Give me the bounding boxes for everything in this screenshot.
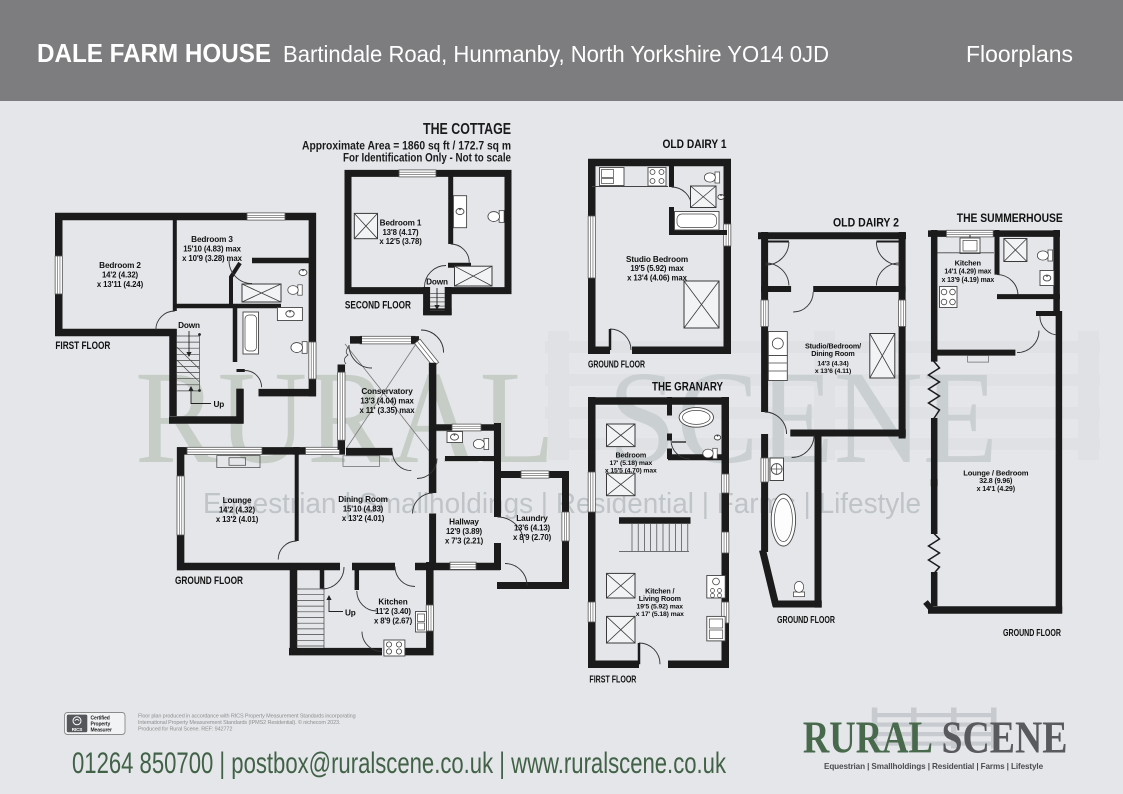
svg-text:For Identification Only - Not: For Identification Only - Not to scale	[343, 151, 511, 165]
svg-text:14'2 (4.32): 14'2 (4.32)	[102, 271, 139, 280]
svg-text:Laundry: Laundry	[516, 514, 548, 523]
svg-text:x 12'5 (3.78): x 12'5 (3.78)	[379, 237, 422, 246]
svg-text:x 17' (5.18) max: x 17' (5.18) max	[636, 611, 684, 618]
svg-text:Dining Room: Dining Room	[338, 495, 388, 504]
svg-text:x 13'2 (4.01): x 13'2 (4.01)	[216, 515, 259, 524]
svg-text:OLD DAIRY 1: OLD DAIRY 1	[663, 137, 727, 151]
svg-text:Up: Up	[345, 609, 356, 618]
svg-text:15'10 (4.83) max: 15'10 (4.83) max	[183, 245, 241, 254]
svg-text:x 13'9 (4.19) max: x 13'9 (4.19) max	[942, 277, 995, 284]
svg-text:Dining Room: Dining Room	[811, 349, 854, 358]
svg-text:Hallway: Hallway	[449, 518, 479, 527]
svg-text:FIRST FLOOR: FIRST FLOOR	[55, 340, 110, 352]
svg-text:13'3 (4.04) max: 13'3 (4.04) max	[360, 397, 414, 406]
svg-text:Down: Down	[178, 321, 200, 330]
svg-text:x 8'9 (2.70): x 8'9 (2.70)	[513, 533, 552, 542]
svg-text:Measurer: Measurer	[91, 728, 112, 734]
svg-text:Lounge / Bedroom: Lounge / Bedroom	[963, 469, 1029, 478]
svg-text:x 15'5 (4.70) max: x 15'5 (4.70) max	[605, 468, 657, 475]
svg-text:Floor plan produced in accorda: Floor plan produced in accordance with R…	[138, 714, 356, 720]
svg-text:FIRST FLOOR: FIRST FLOOR	[589, 674, 636, 685]
svg-text:x 7'3 (2.21): x 7'3 (2.21)	[445, 537, 484, 546]
svg-text:THE GRANARY: THE GRANARY	[652, 380, 723, 394]
svg-text:SECOND FLOOR: SECOND FLOOR	[345, 300, 411, 312]
svg-text:Kitchen: Kitchen	[378, 598, 407, 607]
svg-text:Living Room: Living Room	[639, 594, 681, 603]
svg-text:Floorplans: Floorplans	[966, 41, 1073, 67]
svg-text:Conservatory: Conservatory	[361, 387, 413, 396]
svg-text:19'5 (5.92) max: 19'5 (5.92) max	[630, 264, 684, 273]
svg-text:13'6 (4.13): 13'6 (4.13)	[514, 524, 551, 533]
svg-text:17' (5.18) max: 17' (5.18) max	[609, 460, 652, 467]
svg-text:Up: Up	[214, 400, 225, 409]
svg-text:11'2 (3.40): 11'2 (3.40)	[375, 607, 411, 616]
svg-text:GROUND FLOOR: GROUND FLOOR	[588, 360, 645, 371]
svg-text:International Property Measure: International Property Measurement Stand…	[138, 719, 341, 726]
svg-text:Produced for Rural Scene. RE: Produced for Rural Scene. REF: 942772	[138, 727, 232, 733]
svg-text:12'9 (3.89): 12'9 (3.89)	[446, 527, 483, 536]
svg-text:Studio Bedroom: Studio Bedroom	[626, 255, 688, 264]
svg-text:14'3 (4.34): 14'3 (4.34)	[817, 360, 848, 367]
svg-text:GROUND FLOOR: GROUND FLOOR	[1003, 628, 1061, 639]
svg-text:THE COTTAGE: THE COTTAGE	[423, 121, 511, 138]
svg-text:x 10'9 (3.28) max: x 10'9 (3.28) max	[182, 254, 242, 263]
svg-text:THE SUMMERHOUSE: THE SUMMERHOUSE	[957, 211, 1063, 225]
svg-text:Down: Down	[426, 278, 448, 287]
svg-text:Bedroom 1: Bedroom 1	[380, 219, 422, 228]
svg-text:x 13'6 (4.11): x 13'6 (4.11)	[815, 368, 851, 375]
svg-text:Lounge: Lounge	[223, 496, 252, 505]
svg-text:RICS: RICS	[72, 727, 83, 732]
svg-text:Bartindale Road, Hunmanby, Nor: Bartindale Road, Hunmanby, North Yorkshi…	[283, 41, 829, 67]
svg-text:Bedroom 2: Bedroom 2	[99, 261, 141, 270]
svg-text:01264 850700 | postbox@ruralsc: 01264 850700 | postbox@ruralscene.co.uk …	[72, 747, 727, 780]
svg-text:SCENE: SCENE	[942, 712, 1068, 763]
svg-text:RURAL: RURAL	[803, 712, 933, 763]
svg-text:GROUND FLOOR: GROUND FLOOR	[777, 615, 835, 626]
svg-text:14'1 (4.29) max: 14'1 (4.29) max	[944, 269, 991, 276]
svg-text:Equestrian | Smallholdings | R: Equestrian | Smallholdings | Residential…	[824, 761, 1043, 771]
svg-text:x 13'2 (4.01): x 13'2 (4.01)	[342, 514, 385, 523]
svg-text:GROUND FLOOR: GROUND FLOOR	[175, 575, 243, 587]
svg-text:13'8 (4.17): 13'8 (4.17)	[382, 228, 419, 237]
svg-text:SCENE: SCENE	[608, 343, 998, 491]
svg-text:x 11' (3.35) max: x 11' (3.35) max	[360, 406, 416, 415]
svg-text:15'10 (4.83): 15'10 (4.83)	[343, 505, 384, 514]
svg-text:DALE FARM HOUSE: DALE FARM HOUSE	[37, 38, 271, 68]
svg-text:x 8'9 (2.67): x 8'9 (2.67)	[374, 617, 413, 626]
svg-text:Kitchen: Kitchen	[955, 258, 982, 267]
svg-text:x 13'4 (4.06) max: x 13'4 (4.06) max	[627, 273, 687, 282]
svg-text:Bedroom 3: Bedroom 3	[191, 235, 233, 244]
svg-text:OLD DAIRY 2: OLD DAIRY 2	[833, 216, 899, 230]
svg-text:Bedroom: Bedroom	[615, 450, 646, 459]
svg-text:14'2 (4.32): 14'2 (4.32)	[219, 506, 256, 515]
svg-text:19'5 (5.92) max: 19'5 (5.92) max	[637, 604, 684, 611]
svg-text:x 13'11 (4.24): x 13'11 (4.24)	[97, 280, 144, 289]
svg-text:x 14'1 (4.29): x 14'1 (4.29)	[977, 485, 1016, 493]
